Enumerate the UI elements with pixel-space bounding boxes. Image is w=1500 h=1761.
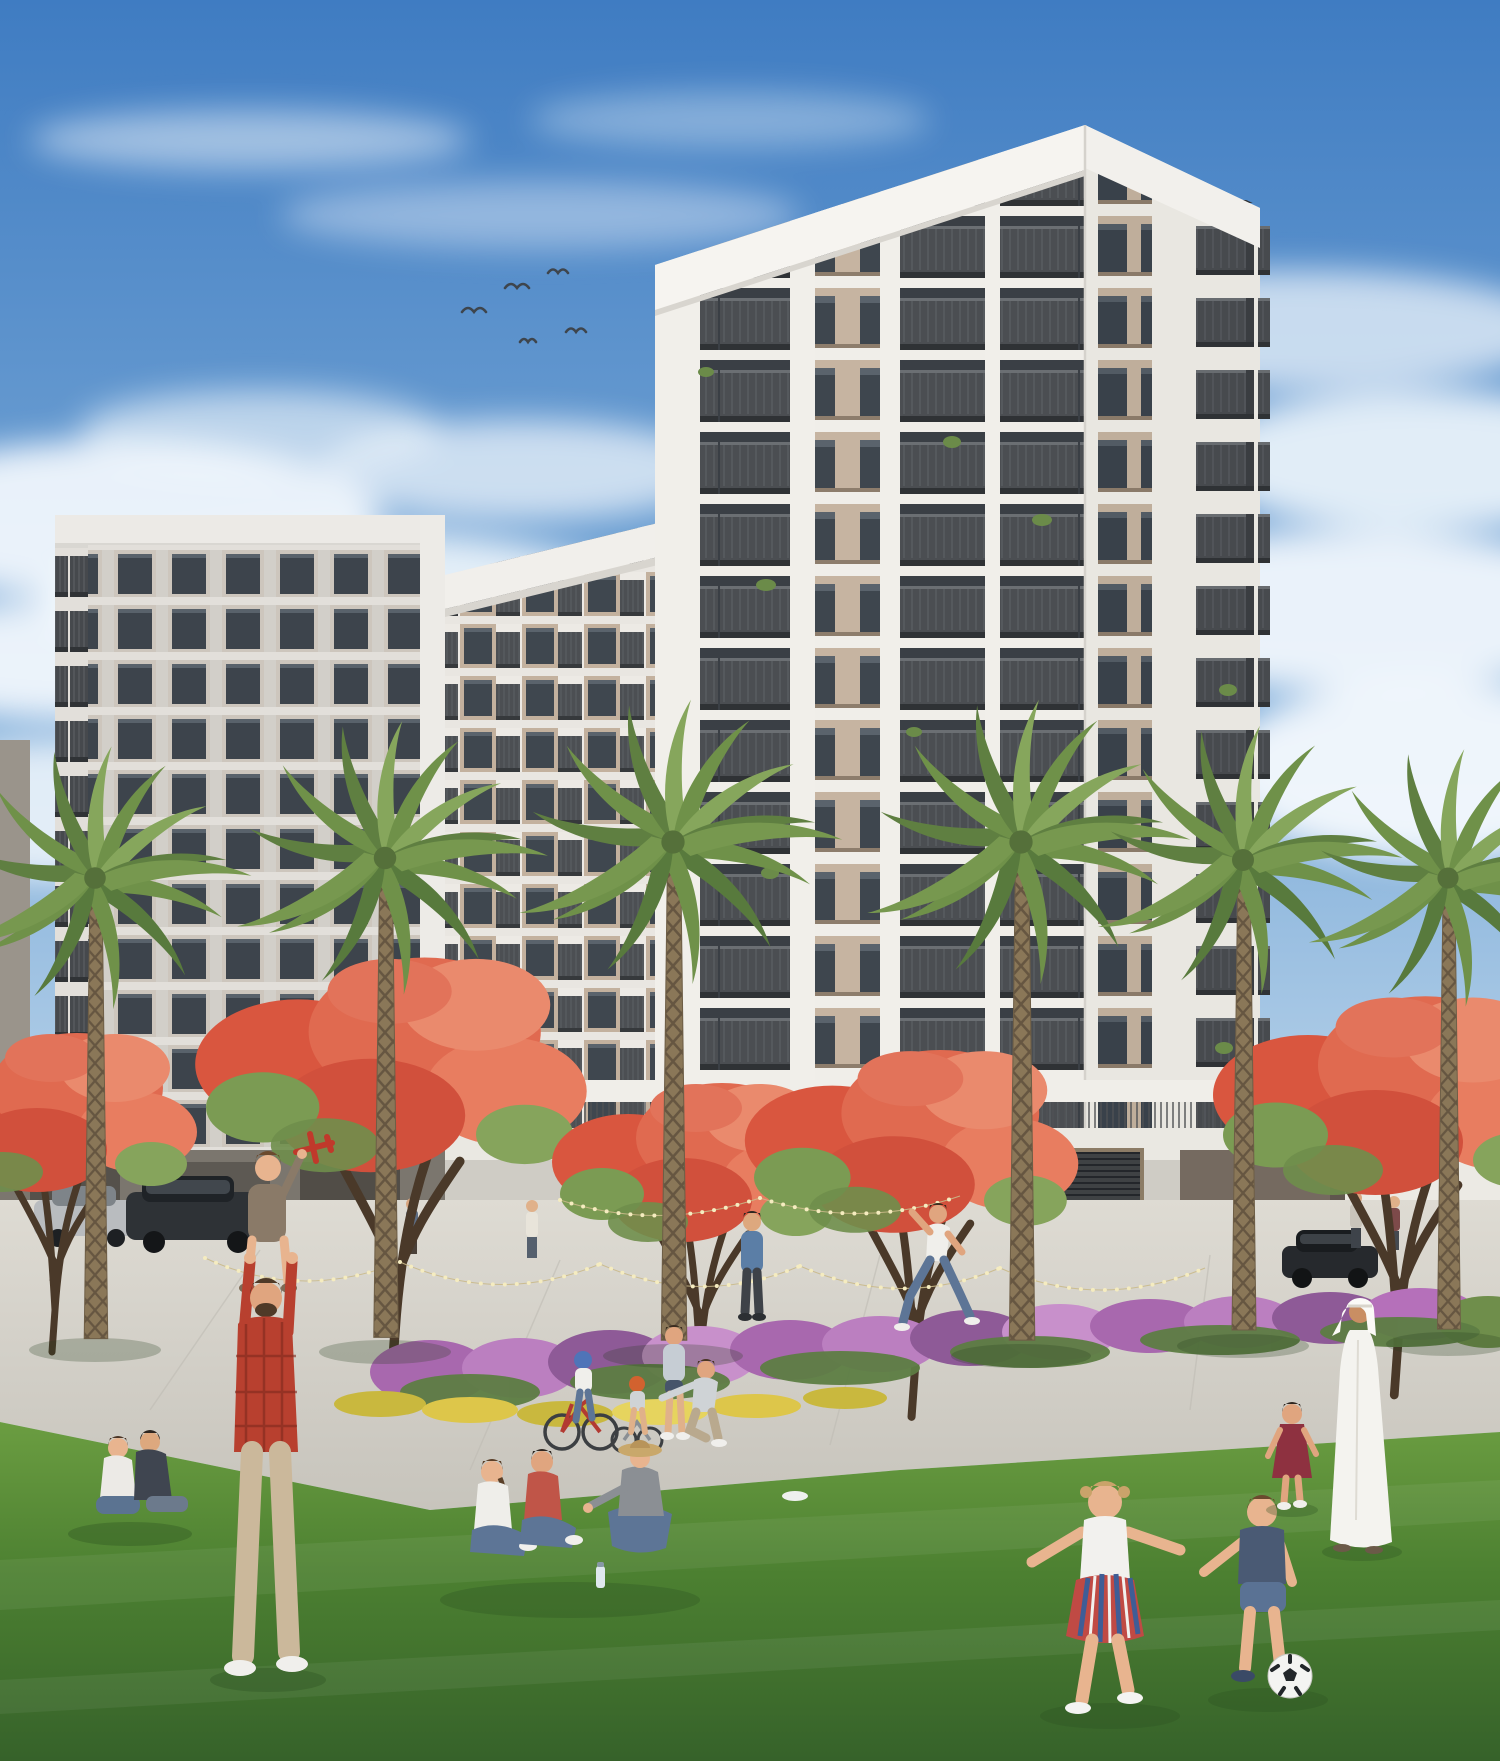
water-bottle: [596, 1562, 605, 1588]
main-tower: [655, 125, 1270, 1160]
scene-svg: HAYA THE ART OF PIZZA: [0, 0, 1500, 1761]
soccer-ball: [1268, 1654, 1312, 1698]
frisbee-disc: [782, 1491, 808, 1501]
rendering-canvas: HAYA THE ART OF PIZZA: [0, 0, 1500, 1761]
